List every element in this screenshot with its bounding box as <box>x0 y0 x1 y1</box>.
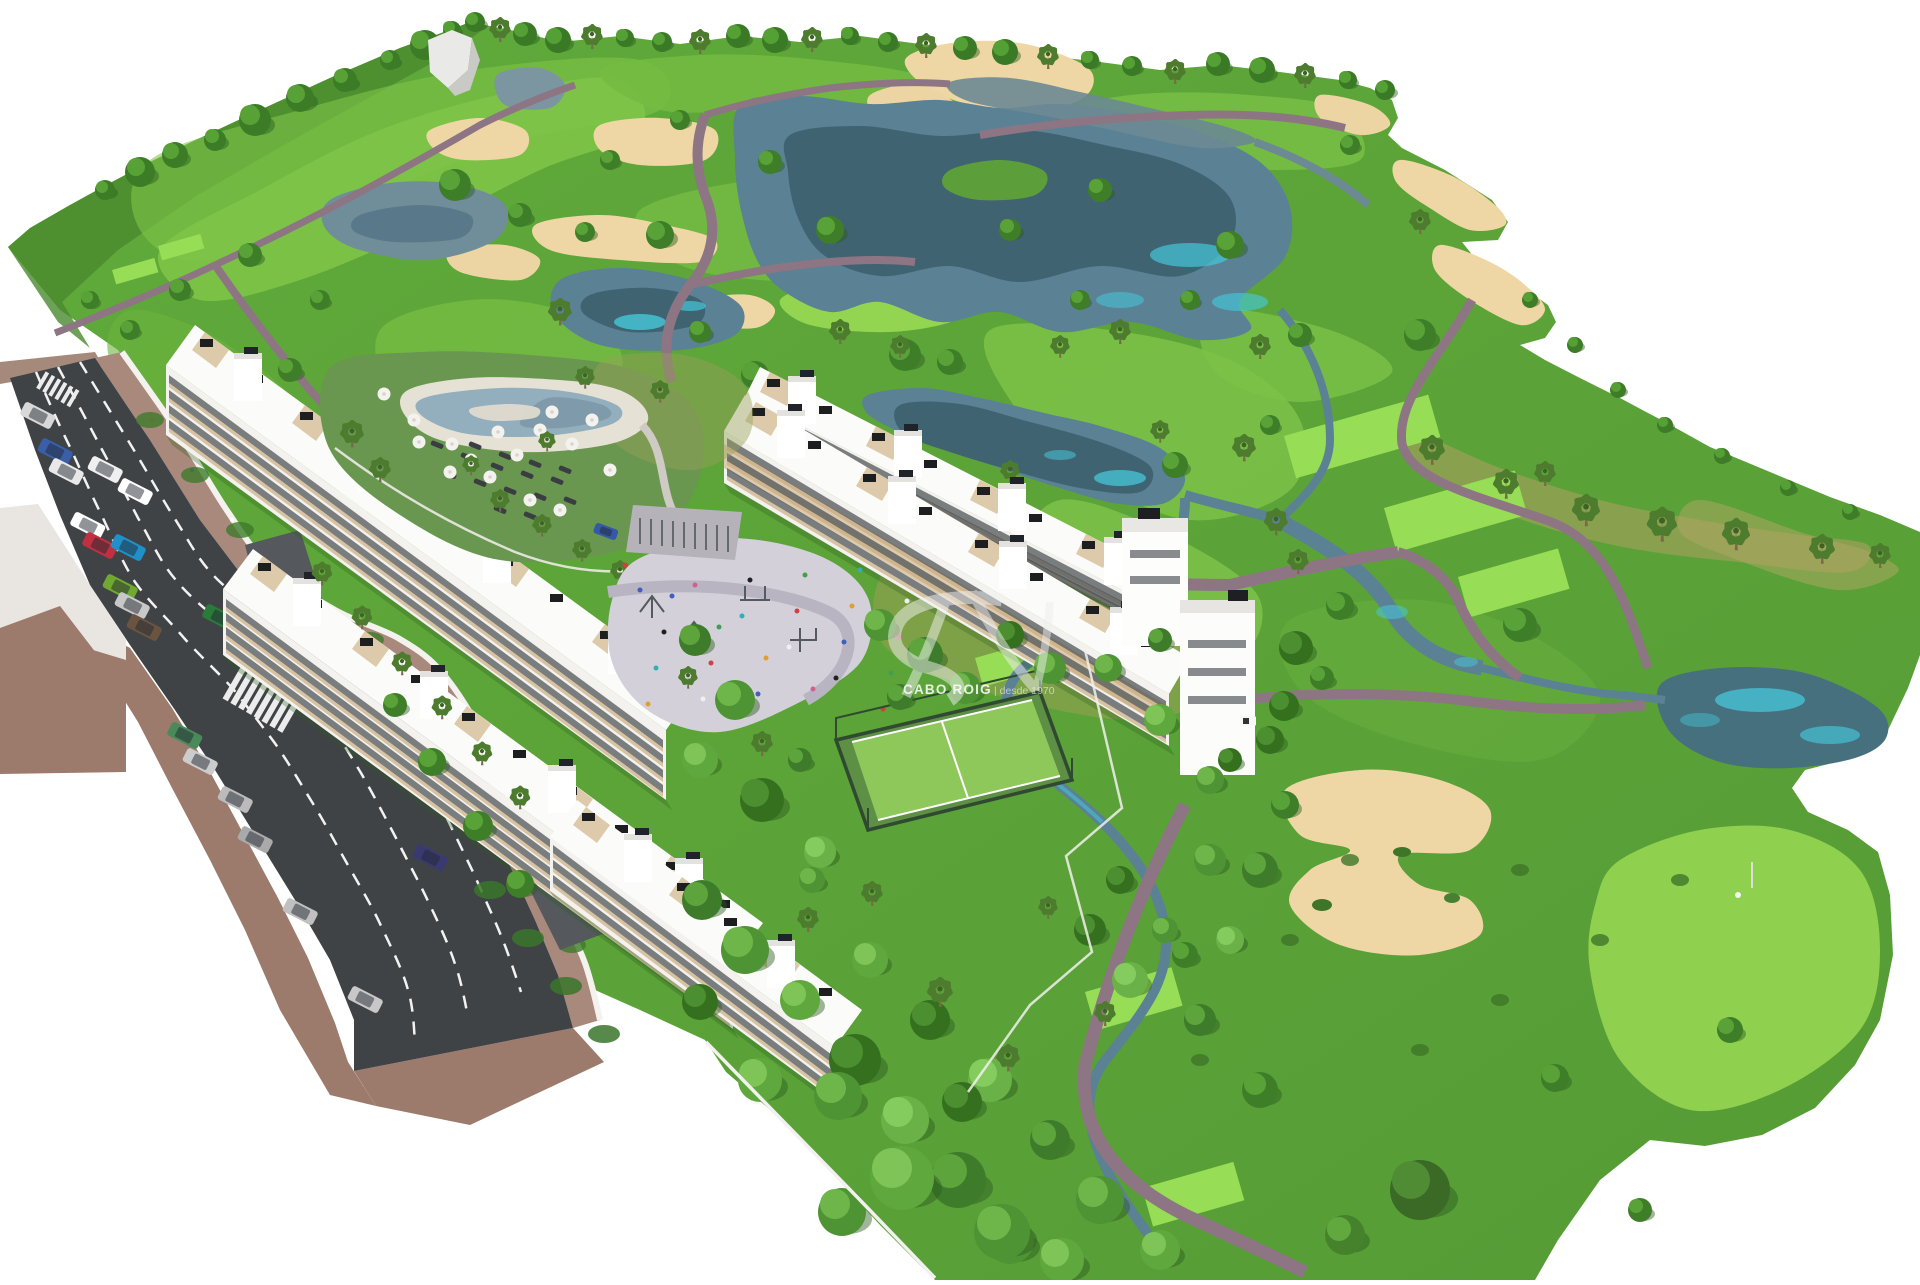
svg-text:| desde 1970: | desde 1970 <box>994 685 1055 697</box>
svg-text:CABO ROIG: CABO ROIG <box>903 682 992 697</box>
